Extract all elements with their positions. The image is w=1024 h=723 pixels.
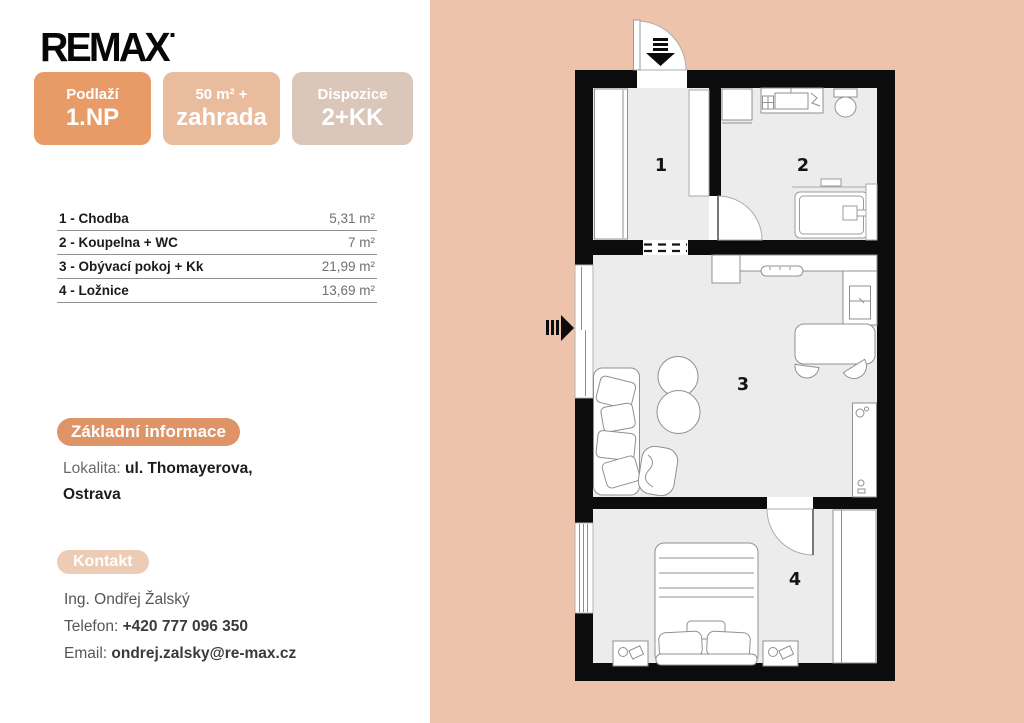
hallway-wardrobe xyxy=(595,89,628,239)
badge-layout-label: Dispozice xyxy=(292,86,413,104)
email-label: Email: xyxy=(64,645,107,662)
basic-info-heading: Základní informace xyxy=(57,418,240,446)
living-cabinet xyxy=(853,403,877,497)
location-block: Lokalita: ul. Thomayerova, Ostrava xyxy=(63,456,383,508)
flyer-page: REMAX Podlaží 1.NP 50 m² + zahrada Dispo… xyxy=(0,0,1024,723)
badge-floor: Podlaží 1.NP xyxy=(34,72,151,145)
contact-block: Ing. Ondřej Žalský Telefon: +420 777 096… xyxy=(64,586,404,667)
email-address: ondrej.zalsky@re-max.cz xyxy=(111,645,296,662)
toilet xyxy=(834,89,857,117)
room-list-row-2: 2 - Koupelna + WC 7 m² xyxy=(57,231,377,255)
room-name: 2 - Koupelna + WC xyxy=(59,235,178,250)
living-room-window xyxy=(575,265,593,398)
room-number-3: 3 xyxy=(737,375,749,395)
room-area: 21,99 m² xyxy=(322,259,375,274)
badge-layout: Dispozice 2+KK xyxy=(292,72,413,145)
hallway-niche xyxy=(689,90,709,196)
bed xyxy=(655,543,758,665)
floorplan-drawing: 1 2 3 4 xyxy=(430,0,1024,723)
room-name: 3 - Obývací pokoj + Kk xyxy=(59,259,203,274)
bathroom-sink-counter xyxy=(761,88,823,113)
remax-logo-text: REMAX xyxy=(40,24,168,70)
room-number-4: 4 xyxy=(789,570,801,590)
contact-heading: Kontakt xyxy=(57,550,149,574)
location-label: Lokalita: xyxy=(63,460,121,477)
room-number-1: 1 xyxy=(655,156,667,176)
badge-layout-value: 2+KK xyxy=(292,105,413,131)
phone-label: Telefon: xyxy=(64,618,118,635)
badge-floor-label: Podlaží xyxy=(34,86,151,104)
remax-logo: REMAX xyxy=(40,24,174,71)
badge-floor-value: 1.NP xyxy=(34,105,151,131)
dining-table xyxy=(795,324,875,364)
nightstand-left xyxy=(613,641,648,666)
bedroom-window xyxy=(575,523,593,613)
location-city: Ostrava xyxy=(63,486,121,503)
room-list: 1 - Chodba 5,31 m² 2 - Koupelna + WC 7 m… xyxy=(57,207,377,303)
bedroom-wardrobe xyxy=(833,510,876,663)
room-area: 13,69 m² xyxy=(322,283,375,298)
nightstand-right xyxy=(763,641,798,666)
room-list-row-1: 1 - Chodba 5,31 m² xyxy=(57,207,377,231)
agent-name: Ing. Ondřej Žalský xyxy=(64,591,190,608)
location-street: ul. Thomayerova, xyxy=(125,460,252,477)
room-name: 4 - Ložnice xyxy=(59,283,129,298)
badge-area-value: zahrada xyxy=(163,105,280,131)
room-list-row-3: 3 - Obývací pokoj + Kk 21,99 m² xyxy=(57,255,377,279)
phone-number: +420 777 096 350 xyxy=(123,618,248,635)
room-list-row-4: 4 - Ložnice 13,69 m² xyxy=(57,279,377,303)
room-area: 7 m² xyxy=(348,235,375,250)
room-name: 1 - Chodba xyxy=(59,211,129,226)
bathroom-cabinet xyxy=(722,89,752,123)
garden-entrance-arrow-icon xyxy=(546,315,574,341)
room-number-2: 2 xyxy=(797,156,809,176)
badge-area: 50 m² + zahrada xyxy=(163,72,280,145)
room-area: 5,31 m² xyxy=(329,211,375,226)
floorplan-panel: 1 2 3 4 xyxy=(430,0,1024,723)
trademark-dot xyxy=(171,33,175,37)
badge-row: Podlaží 1.NP 50 m² + zahrada Dispozice 2… xyxy=(34,72,413,145)
badge-area-label: 50 m² + xyxy=(163,86,280,104)
